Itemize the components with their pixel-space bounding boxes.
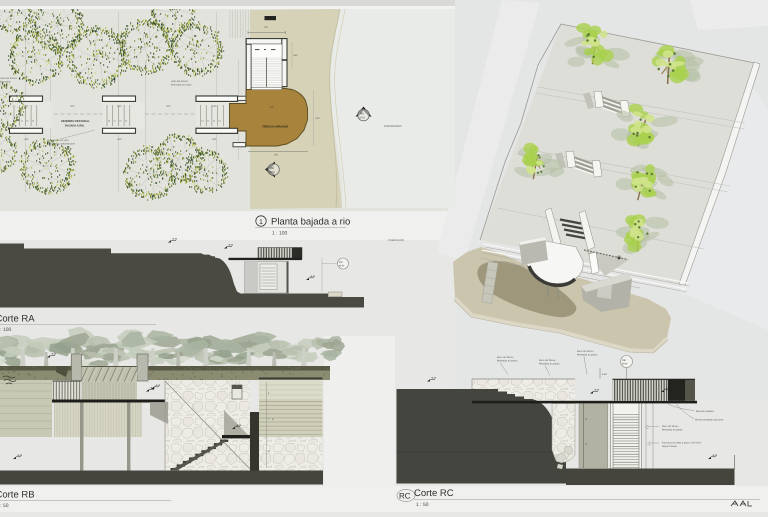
svg-text:+0.00: +0.00: [228, 244, 234, 247]
svg-text:Revestido en pasto: Revestido en pasto: [171, 84, 192, 87]
svg-text:240: 240: [117, 105, 122, 108]
svg-text:Revestido en piedra: Revestido en piedra: [662, 428, 683, 431]
svg-text:+0.00: +0.00: [594, 389, 600, 392]
svg-text:1.10: 1.10: [602, 373, 608, 376]
svg-text:CUENCA RIO: CUENCA RIO: [384, 124, 402, 128]
svg-text:1 : 100: 1 : 100: [272, 231, 288, 237]
svg-text:+0.00: +0.00: [155, 384, 161, 387]
svg-text:+0.00: +0.00: [17, 454, 23, 457]
svg-text:240: 240: [24, 138, 29, 141]
svg-text:Según Cálculo: Según Cálculo: [662, 445, 678, 448]
svg-text:+0.00: +0.00: [236, 424, 242, 427]
svg-text:Revestido: Revestido: [0, 81, 11, 84]
svg-text:Corte RC: Corte RC: [414, 488, 454, 499]
svg-text:Terraza entablado tipo deck: Terraza entablado tipo deck: [695, 419, 724, 422]
svg-text:Baranda metálica: Baranda metálica: [696, 410, 715, 413]
svg-text:+0.00: +0.00: [310, 275, 316, 278]
svg-text:650: 650: [294, 54, 299, 57]
svg-text:240: 240: [212, 138, 217, 141]
svg-text:+0.00: +0.00: [431, 377, 437, 380]
svg-text:Nº20: Nº20: [360, 117, 366, 120]
svg-text:TERRAZA MIRADOR: TERRAZA MIRADOR: [262, 126, 288, 129]
svg-text:Tratamiento antideslizante: Tratamiento antideslizante: [47, 143, 76, 146]
svg-text:500: 500: [270, 106, 275, 109]
svg-text:+0.00: +0.00: [665, 387, 671, 390]
svg-text:1 : 100: 1 : 100: [0, 327, 12, 333]
svg-text:600: 600: [70, 105, 75, 108]
svg-text:+0.00: +0.00: [712, 454, 718, 457]
svg-text:Revestido en piedra: Revestido en piedra: [577, 353, 598, 356]
svg-text:+0.00: +0.00: [172, 238, 178, 241]
svg-text:SENDERO PEATONAL: SENDERO PEATONAL: [61, 120, 90, 123]
svg-text:240: 240: [117, 138, 122, 141]
svg-text:500: 500: [274, 154, 279, 157]
svg-text:Nº20: Nº20: [270, 171, 276, 174]
svg-text:500: 500: [316, 117, 321, 120]
svg-text:RC: RC: [399, 492, 411, 501]
svg-text:Corte RA: Corte RA: [0, 314, 35, 325]
svg-text:Planta bajada a rio: Planta bajada a rio: [271, 217, 350, 228]
svg-text:Muro HA 30cms: Muro HA 30cms: [539, 359, 556, 362]
svg-text:RB: RB: [622, 359, 626, 362]
svg-text:1 : 50: 1 : 50: [416, 502, 429, 508]
svg-text:+0.00: +0.00: [51, 353, 57, 356]
svg-text:Nº20: Nº20: [339, 265, 345, 268]
svg-text:Estructura en tabla a plomo 1X: Estructura en tabla a plomo 1X2"/2X3": [662, 442, 701, 445]
svg-text:570: 570: [264, 26, 269, 29]
svg-text:Revestido en piedra: Revestido en piedra: [539, 362, 560, 365]
svg-text:Corte RB: Corte RB: [0, 490, 35, 501]
svg-text:Revestido en piedra: Revestido en piedra: [497, 359, 518, 362]
svg-text:CUENCA RIO: CUENCA RIO: [388, 239, 404, 242]
svg-text:RA: RA: [360, 112, 364, 115]
svg-text:600: 600: [166, 105, 171, 108]
svg-text:BAJADA A RIO: BAJADA A RIO: [65, 125, 84, 128]
svg-text:Muro HA 30cms: Muro HA 30cms: [662, 425, 679, 428]
svg-text:Muro HA 30cms: Muro HA 30cms: [577, 350, 594, 353]
svg-text:Nº20: Nº20: [622, 363, 628, 366]
svg-text:Muro HA 30cms: Muro HA 30cms: [497, 356, 514, 359]
svg-text:RB: RB: [270, 167, 274, 170]
svg-text:240: 240: [212, 105, 217, 108]
svg-text:1 : 50: 1 : 50: [0, 503, 9, 509]
svg-text:1: 1: [259, 219, 263, 226]
